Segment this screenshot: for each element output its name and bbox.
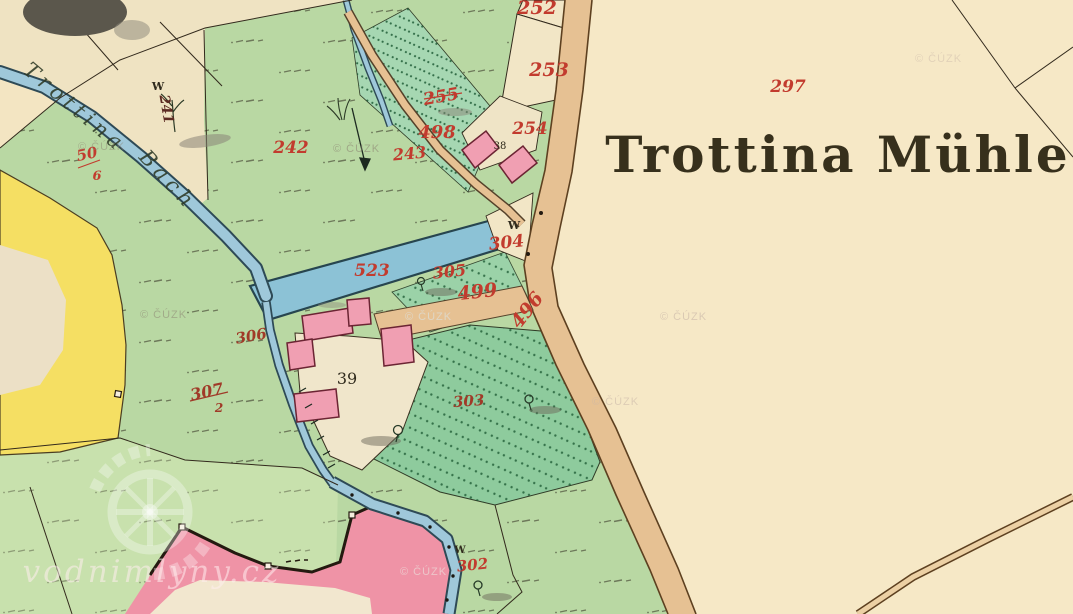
meadow-letter-302: W [453,545,466,556]
cuzk-watermark: © ČÚZK [333,142,380,155]
parcel-label-253: 253 [528,59,569,81]
cuzk-watermark: © ČÚZK [405,310,452,323]
parcel-label-307-denominator: 2 [214,401,223,415]
cuzk-watermark: © ČÚZK [915,52,962,65]
site-watermark: vodnimlyny.cz [23,554,282,590]
map-canvas: 252 253 255 498 254 243 242 297 304 523 … [0,0,1073,614]
mill-building-square [347,298,371,326]
cuzk-watermark: © ČÚZK [660,310,707,323]
mill-building-left [287,339,315,370]
parcel-label-304: 304 [488,231,525,255]
parcel-label-254: 254 [511,119,548,139]
meadow-letter-304: W [507,219,521,232]
cadastral-map-screenshot: 252 253 255 498 254 243 242 297 304 523 … [0,0,1073,614]
map-title: Trottina Mühle [605,125,1070,184]
parcel-label-523: 523 [354,261,390,281]
cuzk-watermark: © ČÚZK [140,308,187,321]
cuzk-watermark: © ČÚZK [592,395,639,408]
parcel-label-242: 242 [272,138,309,158]
parcel-label-302: 302 [456,554,489,575]
cuzk-watermark: © ČÚZK [78,140,125,153]
meadow-letter-241: W [151,80,165,93]
cuzk-watermark: © ČÚZK [400,565,447,578]
parcel-label-303: 303 [452,391,484,411]
house-number-39: 39 [337,369,357,388]
parcel-label-297: 297 [769,77,806,97]
parcel-label-499: 499 [456,279,498,305]
parcel-label-252: 252 [516,0,557,19]
parcel-label-305: 305 [432,260,467,282]
parcel-label-50-denominator: 6 [92,169,101,184]
house-number-38: 38 [494,141,507,152]
mill-building-right [381,325,414,366]
parcel-label-498: 498 [418,122,456,143]
mill-building-south [294,389,339,422]
parcel-label-243: 243 [391,143,427,165]
